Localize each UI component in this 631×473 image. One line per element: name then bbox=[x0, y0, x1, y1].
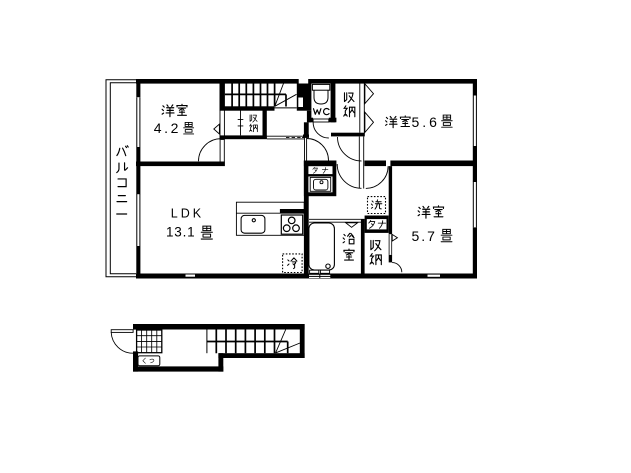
svg-text:5.6: 5.6 bbox=[412, 114, 440, 130]
svg-text:5.7: 5.7 bbox=[412, 228, 437, 244]
svg-text:13.1: 13.1 bbox=[166, 224, 195, 239]
svg-text:LDK: LDK bbox=[171, 207, 204, 221]
svg-text:4.2: 4.2 bbox=[154, 120, 181, 136]
